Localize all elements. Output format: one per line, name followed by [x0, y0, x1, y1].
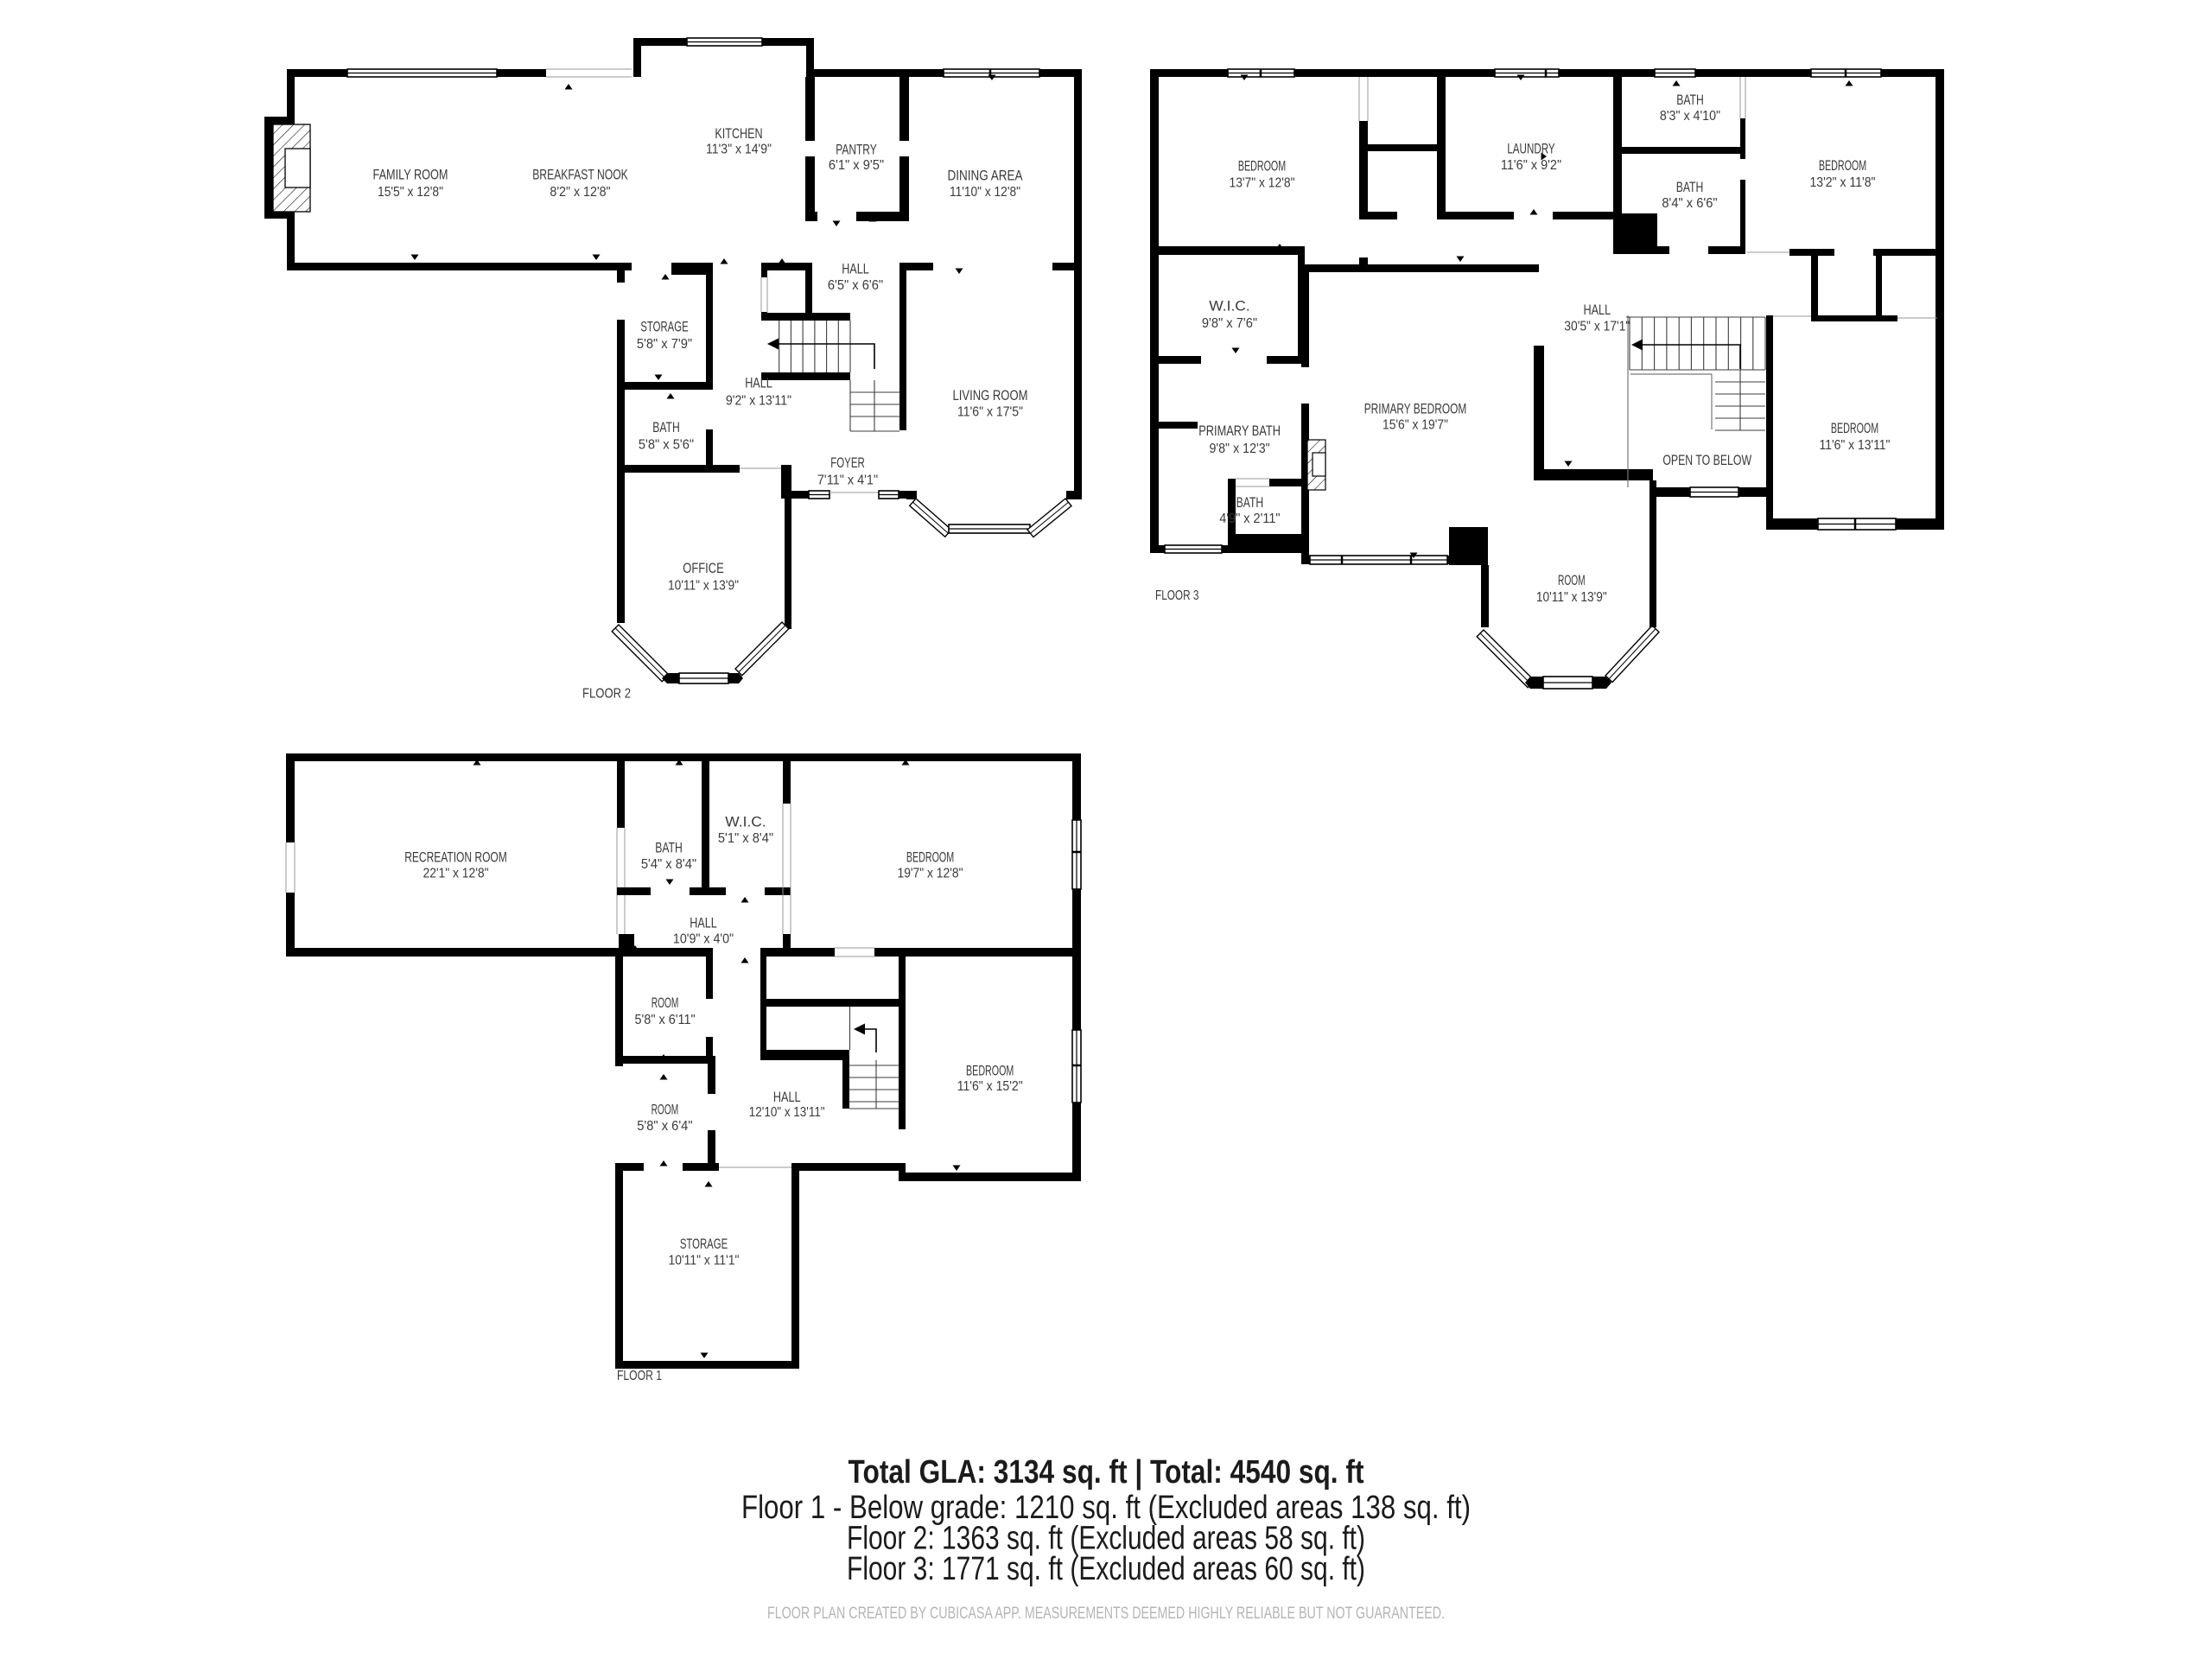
svg-text:5'8" x 6'4": 5'8" x 6'4" [637, 1119, 692, 1134]
svg-text:PANTRY: PANTRY [836, 143, 877, 158]
svg-text:W.I.C.: W.I.C. [725, 815, 766, 830]
svg-text:ROOM: ROOM [1558, 573, 1586, 588]
svg-text:10'11" x 13'9": 10'11" x 13'9" [668, 578, 739, 593]
svg-text:BEDROOM: BEDROOM [1831, 421, 1878, 436]
svg-text:10'9" x 4'0": 10'9" x 4'0" [673, 932, 734, 947]
svg-text:9'8" x 7'6": 9'8" x 7'6" [1202, 316, 1257, 331]
svg-text:FLOOR PLAN CREATED BY CUBICASA: FLOOR PLAN CREATED BY CUBICASA APP. MEAS… [767, 1605, 1445, 1623]
svg-text:30'5" x 17'1": 30'5" x 17'1" [1564, 320, 1630, 334]
svg-text:FAMILY ROOM: FAMILY ROOM [373, 168, 448, 183]
svg-text:RECREATION ROOM: RECREATION ROOM [404, 850, 507, 866]
svg-text:15'6" x 19'7": 15'6" x 19'7" [1382, 418, 1448, 433]
svg-text:6'1" x 9'5": 6'1" x 9'5" [829, 158, 884, 173]
svg-text:11'6" x 9'2": 11'6" x 9'2" [1501, 158, 1561, 173]
svg-text:11'10" x 12'8": 11'10" x 12'8" [950, 185, 1020, 200]
svg-text:BEDROOM: BEDROOM [906, 850, 954, 866]
svg-text:9'2" x 13'11": 9'2" x 13'11" [726, 394, 791, 409]
svg-text:ROOM: ROOM [652, 995, 679, 1011]
svg-text:DINING AREA: DINING AREA [948, 168, 1023, 184]
svg-text:BATH: BATH [1676, 92, 1704, 108]
svg-text:5'8" x 6'11": 5'8" x 6'11" [635, 1013, 696, 1027]
svg-text:FLOOR 2: FLOOR 2 [582, 687, 631, 702]
svg-text:HALL: HALL [745, 376, 772, 391]
svg-text:7'11" x 4'1": 7'11" x 4'1" [817, 473, 878, 487]
svg-text:KITCHEN: KITCHEN [715, 126, 762, 142]
svg-text:9'8" x 12'3": 9'8" x 12'3" [1210, 442, 1270, 456]
svg-text:W.I.C.: W.I.C. [1209, 298, 1249, 314]
svg-text:BATH: BATH [1676, 180, 1704, 195]
svg-text:13'2" x 11'8": 13'2" x 11'8" [1810, 175, 1876, 190]
svg-text:8'3" x 4'10": 8'3" x 4'10" [1660, 109, 1720, 124]
svg-text:OFFICE: OFFICE [683, 561, 724, 576]
svg-text:11'6" x 15'2": 11'6" x 15'2" [957, 1079, 1023, 1094]
svg-text:8'4" x 6'6": 8'4" x 6'6" [1662, 196, 1717, 211]
svg-text:BREAKFAST NOOK: BREAKFAST NOOK [532, 168, 628, 183]
svg-text:5'8" x 7'9": 5'8" x 7'9" [637, 337, 692, 352]
svg-text:6'5" x 6'6": 6'5" x 6'6" [828, 278, 883, 293]
svg-text:10'11" x 13'9": 10'11" x 13'9" [1536, 590, 1607, 605]
svg-text:15'5" x 12'8": 15'5" x 12'8" [378, 185, 443, 200]
svg-text:PRIMARY BEDROOM: PRIMARY BEDROOM [1364, 402, 1467, 417]
svg-text:OPEN TO BELOW: OPEN TO BELOW [1662, 453, 1751, 468]
svg-text:BATH: BATH [652, 420, 680, 435]
svg-text:5'1" x 8'4": 5'1" x 8'4" [718, 831, 773, 846]
svg-text:HALL: HALL [773, 1090, 801, 1105]
svg-text:5'4" x 8'4": 5'4" x 8'4" [641, 857, 696, 872]
svg-text:22'1" x 12'8": 22'1" x 12'8" [423, 867, 489, 881]
svg-text:STORAGE: STORAGE [680, 1236, 728, 1252]
svg-text:11'6" x 17'5": 11'6" x 17'5" [957, 405, 1023, 420]
svg-text:BATH: BATH [655, 841, 683, 856]
svg-text:STORAGE: STORAGE [640, 320, 688, 335]
svg-text:BATH: BATH [1236, 495, 1264, 511]
svg-text:HALL: HALL [690, 916, 717, 931]
svg-text:12'10" x 13'11": 12'10" x 13'11" [749, 1105, 825, 1120]
svg-text:LAUNDRY: LAUNDRY [1507, 141, 1554, 156]
svg-text:HALL: HALL [1584, 302, 1611, 318]
svg-text:FLOOR 1: FLOOR 1 [617, 1369, 662, 1383]
svg-text:11'6" x 13'11": 11'6" x 13'11" [1820, 438, 1891, 453]
svg-text:FLOOR 3: FLOOR 3 [1155, 588, 1198, 603]
svg-text:5'8" x 5'6": 5'8" x 5'6" [639, 437, 694, 452]
svg-text:13'7" x 12'8": 13'7" x 12'8" [1230, 176, 1295, 191]
svg-text:Floor 3: 1771 sq. ft (Excluded: Floor 3: 1771 sq. ft (Excluded areas 60 … [847, 1551, 1365, 1587]
svg-text:LIVING ROOM: LIVING ROOM [953, 388, 1028, 404]
svg-text:11'3" x 14'9": 11'3" x 14'9" [706, 143, 772, 157]
svg-text:19'7" x 12'8": 19'7" x 12'8" [898, 867, 963, 881]
svg-text:FOYER: FOYER [830, 455, 865, 471]
svg-text:BEDROOM: BEDROOM [966, 1064, 1014, 1079]
svg-text:4'9" x 2'11": 4'9" x 2'11" [1219, 512, 1280, 526]
svg-text:PRIMARY BATH: PRIMARY BATH [1198, 423, 1281, 439]
svg-text:BEDROOM: BEDROOM [1819, 158, 1866, 174]
svg-text:10'11" x 11'1": 10'11" x 11'1" [669, 1254, 740, 1268]
svg-text:BEDROOM: BEDROOM [1238, 158, 1286, 174]
svg-text:ROOM: ROOM [652, 1102, 679, 1117]
svg-text:8'2" x 12'8": 8'2" x 12'8" [550, 185, 610, 200]
svg-text:HALL: HALL [842, 262, 869, 277]
svg-text:Total GLA: 3134 sq. ft | Total: Total GLA: 3134 sq. ft | Total: 4540 sq.… [849, 1454, 1364, 1491]
